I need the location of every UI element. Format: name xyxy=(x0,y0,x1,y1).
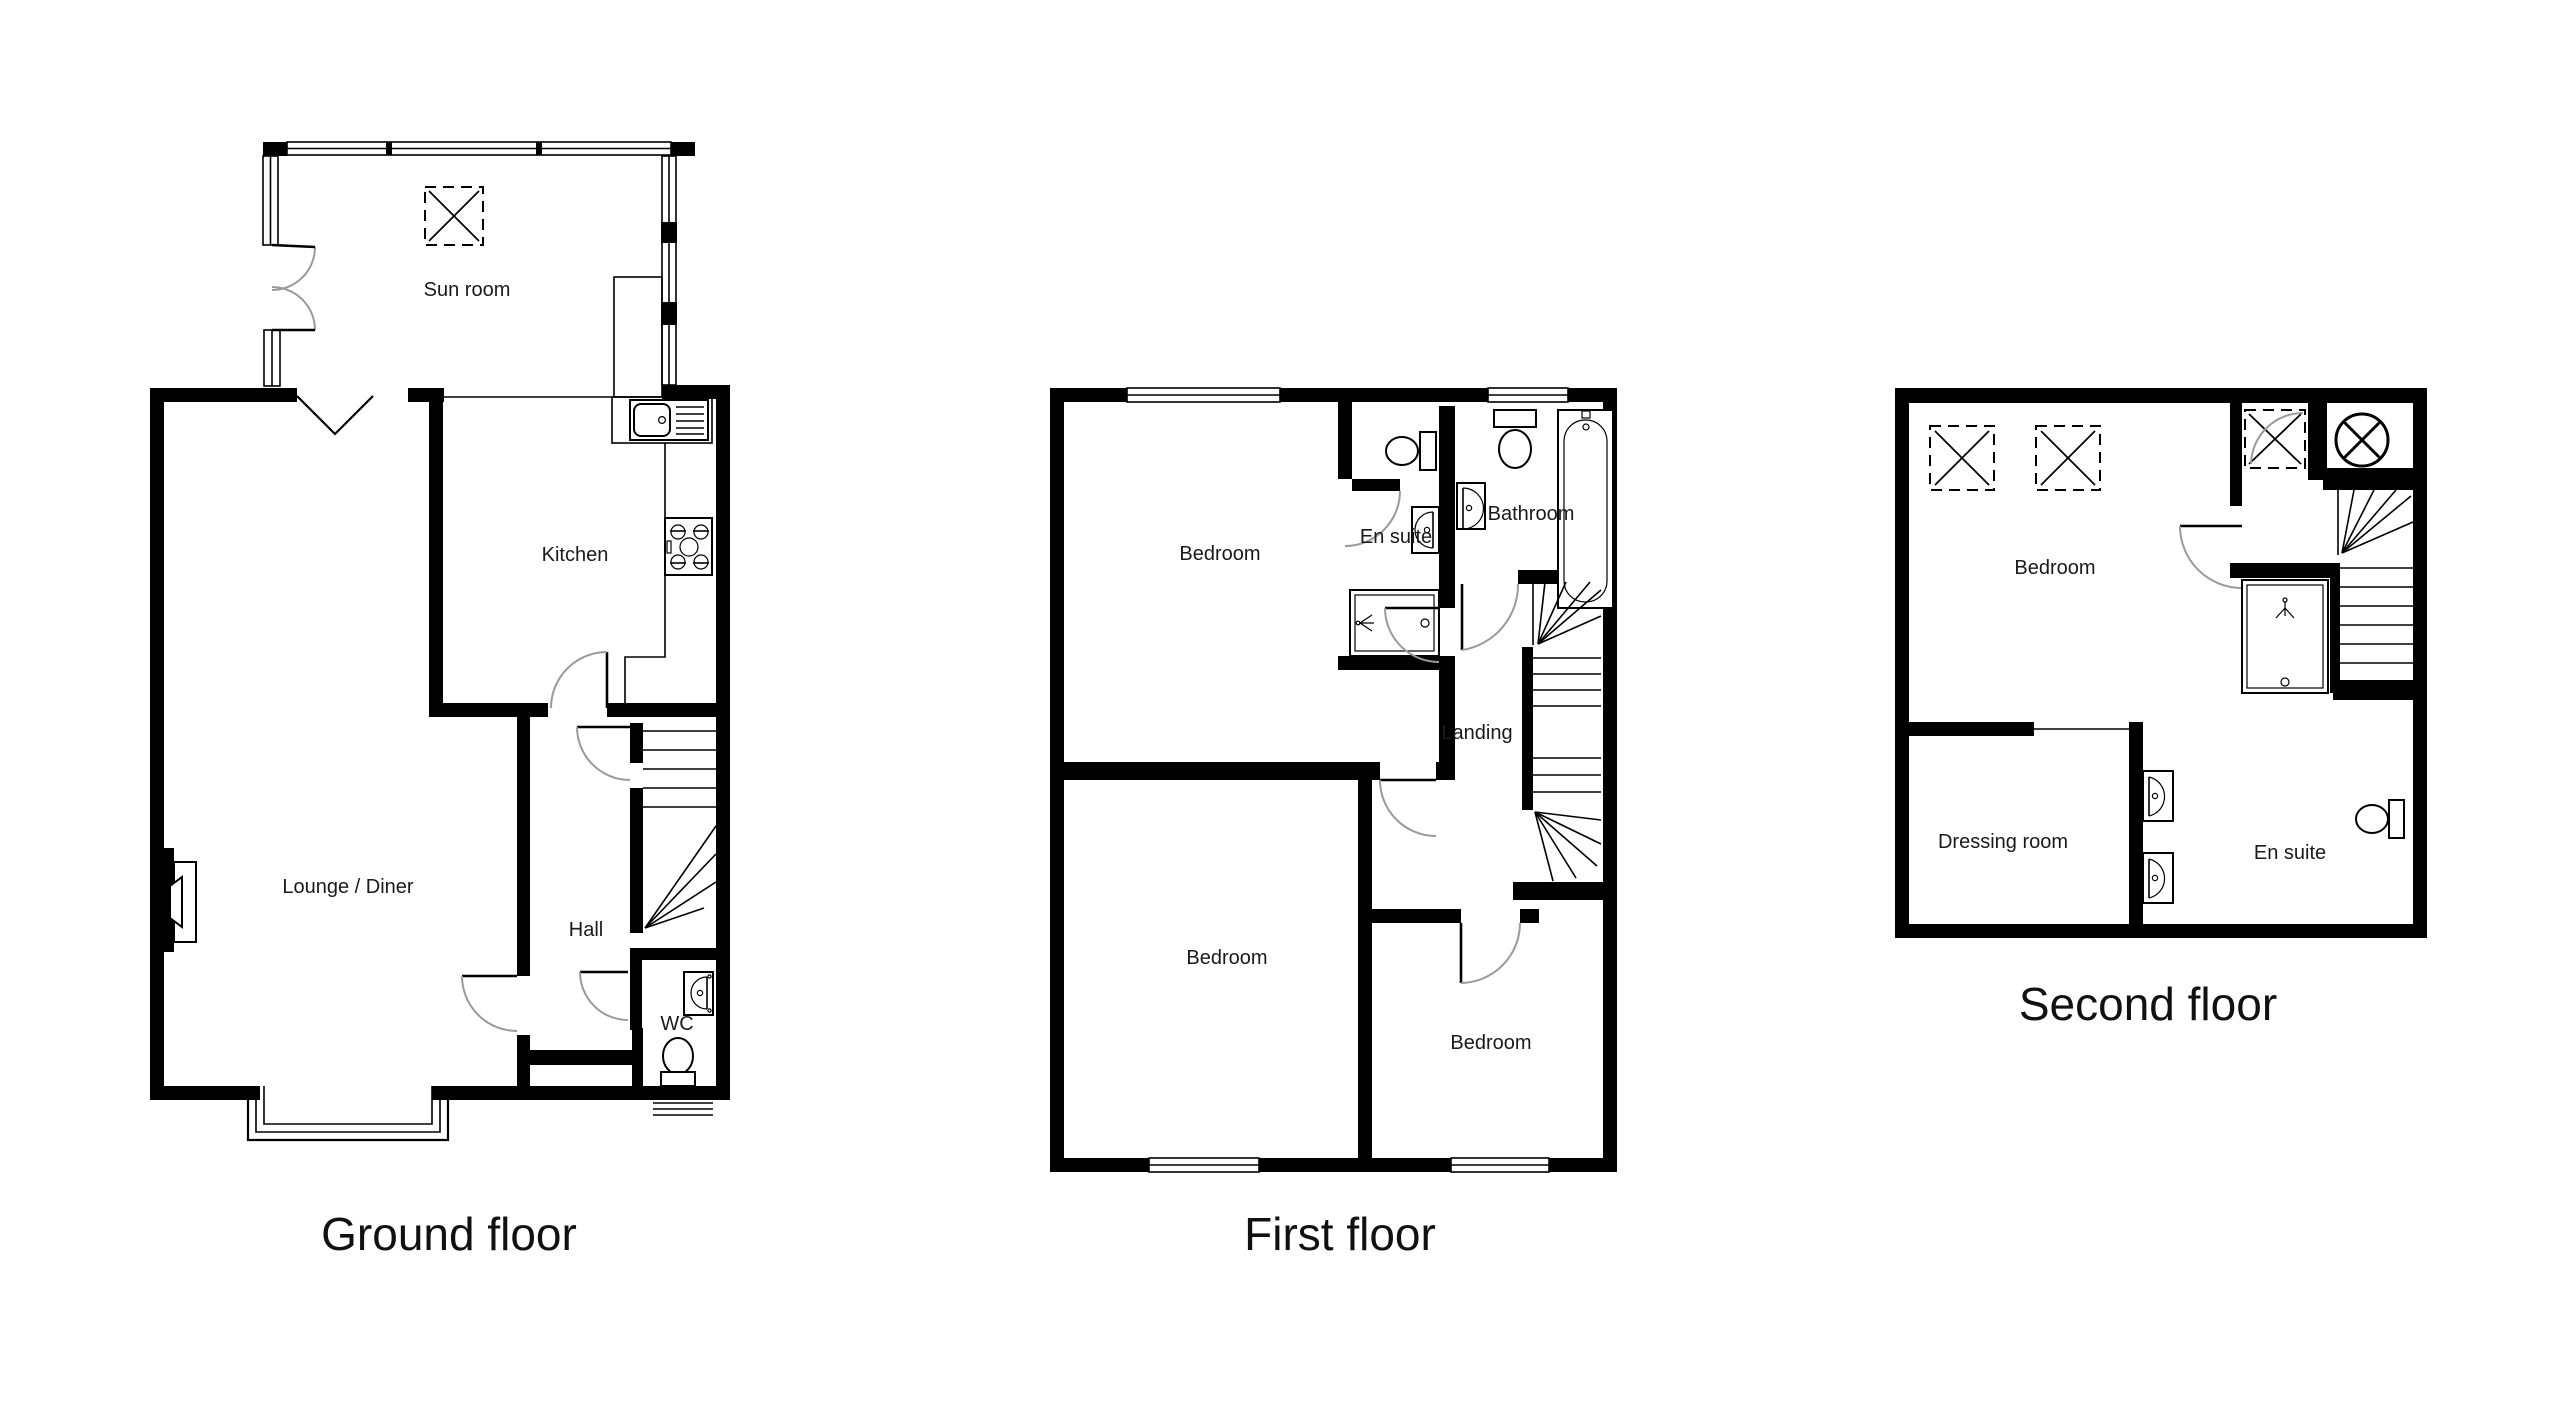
room-label-bedroom-back: Bedroom xyxy=(1186,947,1267,969)
fireplace-icon xyxy=(164,848,196,952)
room-label-bathroom: Bathroom xyxy=(1488,503,1575,525)
worktop xyxy=(614,277,662,397)
bay-window xyxy=(248,1086,448,1140)
sink-icon xyxy=(1457,483,1485,529)
sink-icon xyxy=(2143,771,2173,821)
second-floor-plan: Bedroom Dressing room En suite Second fl… xyxy=(1895,388,2427,1030)
room-label-hall: Hall xyxy=(569,919,603,941)
wc-door xyxy=(580,972,628,1020)
first-floor-title: First floor xyxy=(1244,1208,1436,1260)
toilet-icon xyxy=(661,1038,695,1086)
floorplan-page: Sun room xyxy=(0,0,2560,1403)
ground-floor-plan: Sun room xyxy=(150,142,730,1260)
first-floor-plan: Bedroom En suite Bathroom Landing Bedroo… xyxy=(1050,388,1617,1260)
room-label-wc: WC xyxy=(660,1013,693,1035)
skylight-icon xyxy=(2036,426,2100,490)
sun-room: Sun room xyxy=(263,142,695,397)
room-label-landing: Landing xyxy=(1441,722,1512,744)
extractor-fan-icon xyxy=(2336,414,2388,466)
room-label-bedroom-front: Bedroom xyxy=(1179,543,1260,565)
floorplan-drawing: Sun room xyxy=(0,0,2560,1403)
lounge-door xyxy=(462,976,517,1031)
ground-floor-walls xyxy=(150,385,730,1100)
room-label-en-suite: En suite xyxy=(2254,842,2326,864)
room-label-bedroom: Bedroom xyxy=(2014,557,2095,579)
ground-floor-title: Ground floor xyxy=(321,1208,577,1260)
kitchen-door xyxy=(551,652,607,708)
stairs-door xyxy=(577,727,630,780)
french-doors xyxy=(272,245,315,330)
window xyxy=(287,142,671,155)
toilet-icon xyxy=(2356,800,2404,838)
bedroom-door xyxy=(1461,923,1520,983)
sink-icon xyxy=(2143,853,2173,903)
second-floor-title: Second floor xyxy=(2019,978,2277,1030)
room-label-en-suite: En suite xyxy=(1360,526,1432,548)
shower-tray-icon xyxy=(1350,590,1439,656)
bedroom-door xyxy=(2180,526,2242,588)
window xyxy=(263,156,280,386)
window xyxy=(661,156,677,385)
room-label-sun-room: Sun room xyxy=(424,279,511,301)
skylight-icon xyxy=(1930,426,1994,490)
toilet-icon xyxy=(1386,432,1436,470)
skylight-icon xyxy=(425,187,483,245)
stairs xyxy=(643,731,716,928)
kitchen-counter xyxy=(625,443,665,703)
bathroom-door xyxy=(1462,584,1518,650)
wc-sink-icon xyxy=(684,972,713,1015)
room-label-bedroom-rear: Bedroom xyxy=(1450,1032,1531,1054)
room-label-dressing-room: Dressing room xyxy=(1938,831,2068,853)
open-passage-marker xyxy=(297,396,373,434)
kitchen-sink-icon xyxy=(612,397,712,443)
shower-cubicle-icon xyxy=(2245,410,2305,468)
room-label-lounge-diner: Lounge / Diner xyxy=(282,876,414,898)
hob-icon xyxy=(665,518,712,575)
bedroom-door xyxy=(1380,780,1436,836)
exterior-steps xyxy=(653,1103,713,1115)
room-label-kitchen: Kitchen xyxy=(542,544,609,566)
shower-enclosure-icon xyxy=(2242,580,2328,693)
toilet-icon xyxy=(1494,410,1536,468)
stairs xyxy=(1533,582,1601,881)
stairs xyxy=(2338,490,2413,663)
